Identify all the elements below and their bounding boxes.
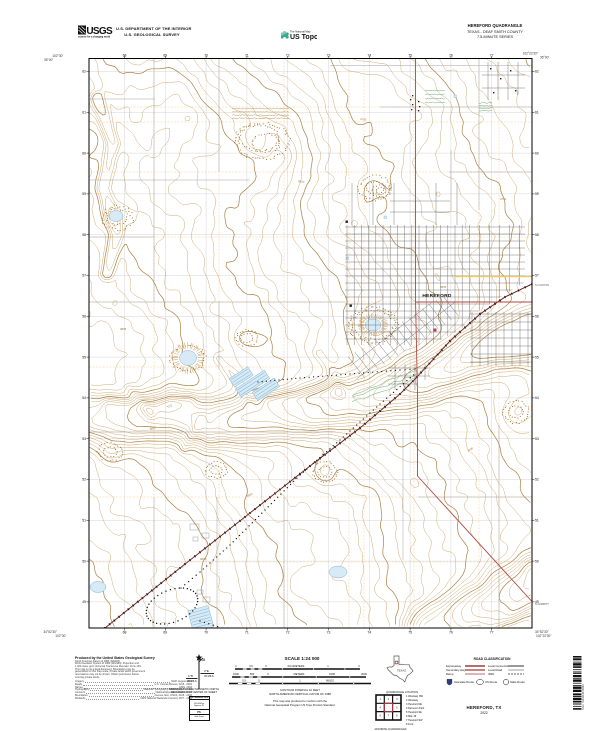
svg-text:NSN. 7643014674684: NSN. 7643014674684 [581,684,585,710]
